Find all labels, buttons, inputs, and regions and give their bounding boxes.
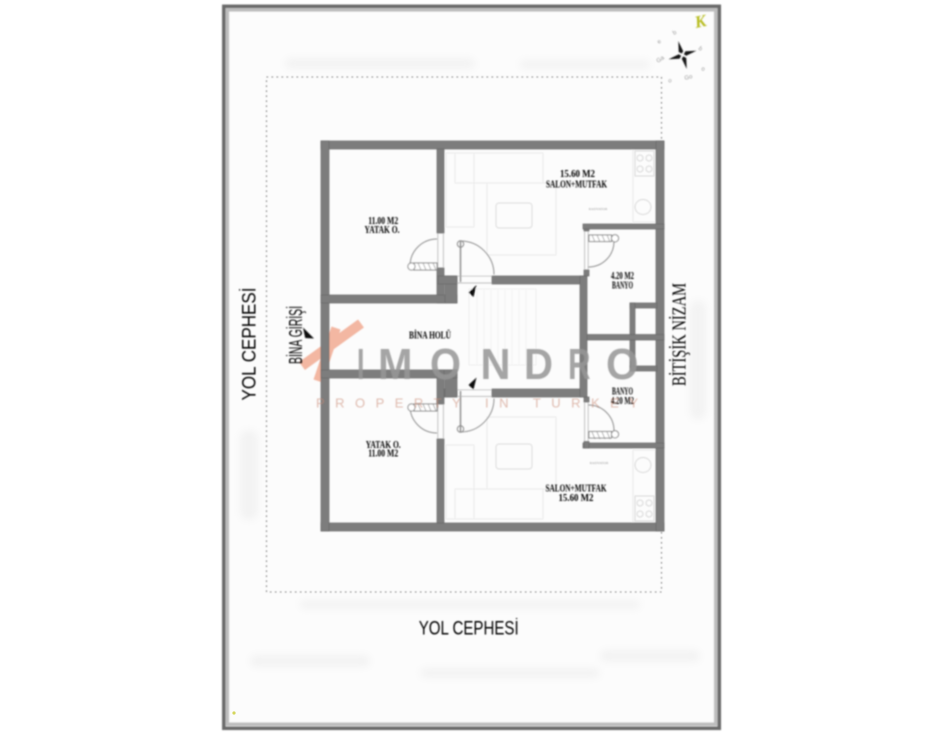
svg-text:I: I bbox=[357, 341, 365, 389]
svg-text:11.00 M2: 11.00 M2 bbox=[368, 449, 398, 460]
svg-text:BİNA GİRİŞİ: BİNA GİRİŞİ bbox=[286, 306, 306, 364]
svg-text:YOL CEPHESİ: YOL CEPHESİ bbox=[240, 288, 261, 401]
svg-text:M: M bbox=[378, 341, 413, 389]
svg-text:YATAK O.: YATAK O. bbox=[365, 225, 400, 236]
svg-text:BİTİŞİK NİZAM: BİTİŞİK NİZAM bbox=[668, 283, 691, 386]
svg-text:D: D bbox=[524, 341, 553, 389]
svg-text:15.60 M2: 15.60 M2 bbox=[560, 169, 595, 180]
svg-text:N: N bbox=[481, 341, 511, 389]
svg-text:O: O bbox=[430, 341, 461, 389]
svg-text:YOL CEPHESİ: YOL CEPHESİ bbox=[419, 619, 519, 640]
svg-text:RADYATOR: RADYATOR bbox=[589, 207, 608, 211]
svg-text:15.60 M2: 15.60 M2 bbox=[559, 493, 594, 504]
svg-text:BANYO: BANYO bbox=[612, 281, 633, 292]
svg-text:4.20 M2: 4.20 M2 bbox=[611, 396, 634, 407]
svg-text:RADYATOR: RADYATOR bbox=[590, 461, 609, 465]
svg-text:BİNA HOLÜ: BİNA HOLÜ bbox=[409, 329, 451, 342]
svg-text:SALON+MUTFAK: SALON+MUTFAK bbox=[546, 180, 607, 191]
svg-text:O: O bbox=[606, 341, 639, 389]
svg-text:R: R bbox=[568, 341, 591, 389]
